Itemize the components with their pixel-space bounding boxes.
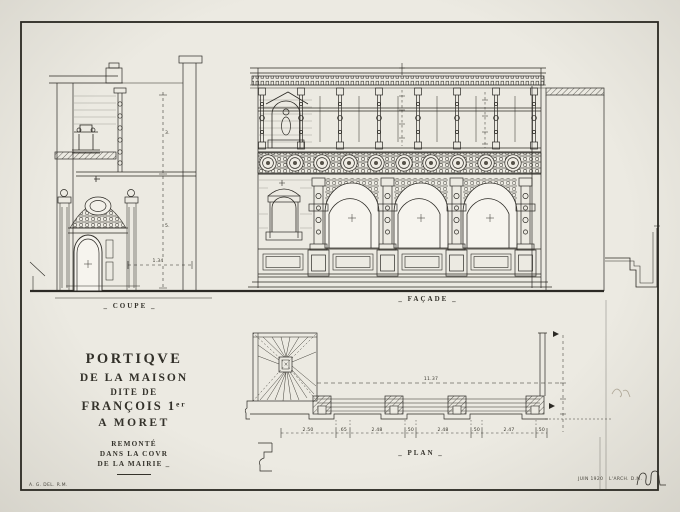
side-wall-right [546,88,604,291]
dim-plan-4: .50 [406,428,414,433]
dim-plan-total: 11.37 [423,377,439,382]
dim-plan-2: .65 [339,428,347,433]
dim-coupe-width: 1.34 [151,259,164,264]
subtitle-cour: DANS LA COVR [60,450,208,458]
plan-drawing [245,300,612,489]
dim-plan-3: 2.48 [371,428,382,433]
drawing-sheet: _ COUPE _ _ FAÇADE _ _ PLAN _ PORTIQVE D… [0,0,680,512]
subtitle-remonte: REMONTÉ [60,440,208,448]
title-rule [117,474,151,475]
dim-coupe-upper: 3. [165,131,170,136]
facade-drawing [248,63,552,288]
title-line-dite-de: DITE DE [60,387,208,397]
title-block: PORTIQVE DE LA MAISON DITE DE FRANÇOIS 1… [60,351,208,475]
title-line-moret: A MORET [60,417,208,429]
dim-plan-1: 2.50 [302,428,313,433]
coupe-drawing [30,56,604,298]
title-line-maison: DE LA MAISON [60,372,208,384]
dim-coupe-lower: 5. [165,224,170,229]
title-line-francois: FRANÇOIS 1ᵉʳ [60,399,208,414]
credit-date: JUIN 1920 [578,477,603,482]
cornice-profile-detail [605,226,660,287]
subtitle-mairie: DE LA MAIRIE _ [60,460,208,468]
label-plan: _ PLAN _ [376,449,466,457]
title-line-portique: PORTIQVE [60,351,208,368]
dim-plan-5: 2.48 [437,428,448,433]
stair-spiral [253,333,317,401]
dim-plan-6: .50 [472,428,480,433]
dim-plan-7: 2.47 [503,428,514,433]
label-facade: _ FAÇADE _ [383,295,473,303]
credit-delineator: A. G. DEL. R.M. [29,483,68,488]
credit-architect: L'ARCH. D.M. [609,477,642,482]
label-coupe: _ COUPE _ [85,302,175,310]
pencil-annotation [612,389,630,397]
dim-plan-8: .50 [537,428,545,433]
